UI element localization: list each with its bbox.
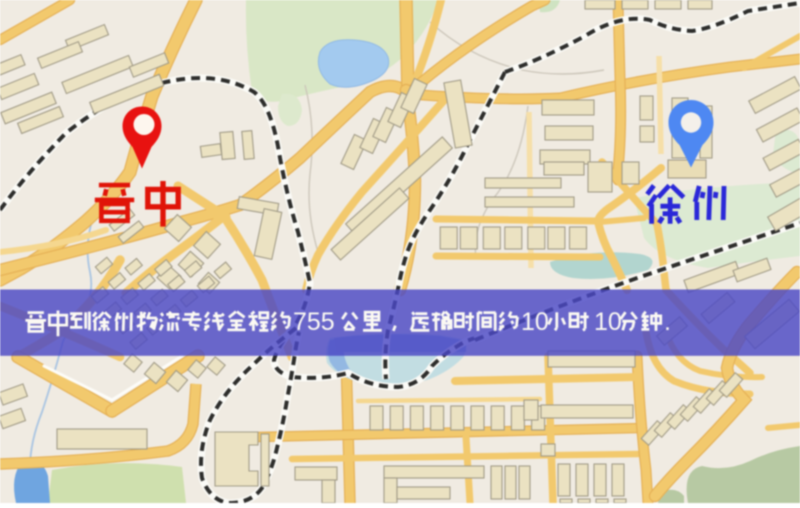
- svg-text:10: 10: [594, 308, 622, 336]
- svg-text:10: 10: [521, 308, 549, 336]
- svg-text:.: .: [664, 308, 671, 336]
- svg-text:755: 755: [293, 308, 335, 336]
